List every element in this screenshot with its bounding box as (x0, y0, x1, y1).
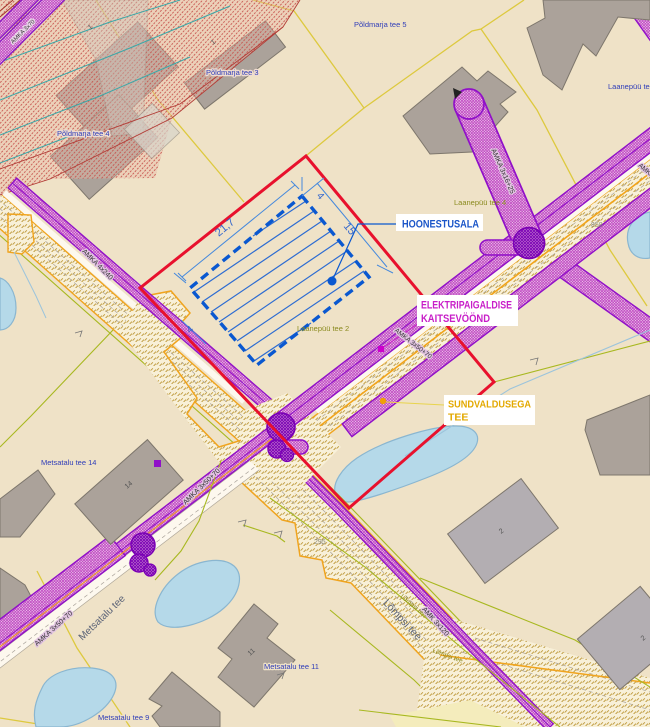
svg-text:958: 958 (591, 222, 603, 229)
svg-text:Laanepüü tee 2: Laanepüü tee 2 (297, 324, 349, 333)
svg-text:ELEKTRIPAIGALDISE: ELEKTRIPAIGALDISE (421, 300, 512, 312)
svg-text:Põldmarja tee 5: Põldmarja tee 5 (354, 20, 407, 29)
svg-text:HOONESTUSALA: HOONESTUSALA (402, 219, 479, 231)
svg-text:Metsatalu tee 14: Metsatalu tee 14 (41, 458, 96, 467)
svg-text:Laanepüü tee 6: Laanepüü tee 6 (608, 82, 650, 91)
svg-text:Põldmarja tee 4: Põldmarja tee 4 (57, 129, 110, 138)
svg-text:KAITSEVÖÖND: KAITSEVÖÖND (421, 312, 490, 325)
svg-text:Laanepüü tee 4: Laanepüü tee 4 (454, 198, 506, 207)
svg-text:Metsatalu tee 11: Metsatalu tee 11 (264, 662, 319, 671)
svg-text:TEE: TEE (448, 412, 468, 424)
svg-text:Metsatalu tee 9: Metsatalu tee 9 (98, 713, 149, 722)
svg-text:Põldmarja tee 3: Põldmarja tee 3 (206, 68, 259, 77)
svg-text:SUNDVALDUSEGA: SUNDVALDUSEGA (448, 399, 531, 411)
svg-text:295: 295 (314, 539, 326, 546)
